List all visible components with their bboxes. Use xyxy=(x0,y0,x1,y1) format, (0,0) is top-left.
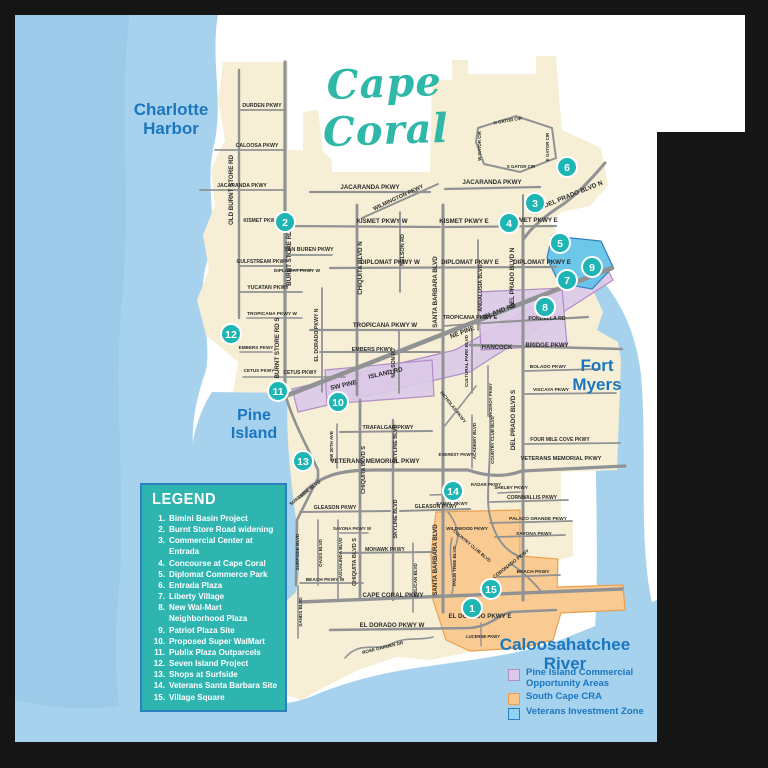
road-label: EVEREST PKWY xyxy=(439,452,474,457)
road-label: W GATOR CIR xyxy=(477,130,482,160)
map-marker-5[interactable]: 5 xyxy=(550,233,570,253)
marker-number: 14 xyxy=(447,486,459,498)
road-label: CETUS PKWY xyxy=(244,368,275,373)
zone-legend: Pine Island Commercial Opportunity Areas… xyxy=(508,668,663,722)
marker-number: 1 xyxy=(469,603,475,615)
legend-item: 1.Bimini Basin Project xyxy=(150,513,279,524)
zone-legend-row: South Cape CRA xyxy=(508,692,663,705)
map-marker-1[interactable]: 1 xyxy=(462,598,482,618)
road-label: OASIS BLVD xyxy=(318,538,323,566)
road-label: PALM TREE BLVD xyxy=(452,545,457,585)
legend-item: 12.Seven Island Project xyxy=(150,658,279,669)
marker-number: 11 xyxy=(272,386,283,398)
legend-item-number: 2. xyxy=(150,524,165,535)
marker-number: 5 xyxy=(557,238,563,250)
road-label: NELSON RD xyxy=(400,234,406,266)
legend-item-label: Veterans Santa Barbara Site xyxy=(169,680,277,691)
legend-item-number: 10. xyxy=(150,636,165,647)
road-label: EMBERS PKWY xyxy=(352,347,393,353)
zone-legend-row: Pine Island Commercial Opportunity Areas xyxy=(508,668,663,690)
legend-item: 13.Shops at Surfside xyxy=(150,669,279,680)
legend-item-label: Liberty Village xyxy=(169,591,224,602)
legend-item-number: 12. xyxy=(150,658,165,669)
zone-legend-label: Veterans Investment Zone xyxy=(526,707,644,718)
marker-number: 8 xyxy=(542,302,548,314)
map-canvas: OLD BURNT STORE RDBURNT STORE RD NBURNT … xyxy=(0,0,768,768)
road-label: VICEROY PKWY xyxy=(488,383,493,417)
legend-item-label: Proposed Super WalMart xyxy=(169,636,265,647)
legend-item-number: 5. xyxy=(150,569,165,580)
road-label: TROPICANA PKWY W xyxy=(353,322,417,329)
frame-right-band xyxy=(657,132,768,768)
road-label: E GATOR CIR xyxy=(545,132,550,161)
road-label: SANTA BARBARA BLVD xyxy=(432,524,439,596)
map-marker-7[interactable]: 7 xyxy=(557,270,577,290)
road-label: SANTA BARBARA BLVD xyxy=(432,256,439,328)
road-label: BURNT STORE RD S xyxy=(274,317,281,378)
road-label: CAPE CORAL PKWY xyxy=(362,592,424,599)
zone-legend-label: Pine Island Commercial Opportunity Areas xyxy=(526,668,633,690)
road-label: BOLADO PKWY xyxy=(530,364,567,370)
legend-item-number: 9. xyxy=(150,625,165,636)
road-label: GLEASON PKWY xyxy=(415,504,458,510)
marker-number: 4 xyxy=(506,218,512,230)
legend-item-label: Shops at Surfside xyxy=(169,669,238,680)
road-label: EMBERS PKWY xyxy=(239,345,274,350)
road-label: CETUS PKWY xyxy=(283,370,317,376)
marker-number: 6 xyxy=(564,162,570,174)
legend-item-number: 1. xyxy=(150,513,165,524)
legend-item-label: Commercial Center at Entrada xyxy=(169,535,279,557)
road-label: CULTURAL PARK BLVD xyxy=(464,334,469,387)
zone-swatch xyxy=(508,708,520,720)
map-marker-4[interactable]: 4 xyxy=(499,213,519,233)
legend-item-number: 3. xyxy=(150,535,165,557)
map-marker-2[interactable]: 2 xyxy=(275,212,295,232)
road xyxy=(525,443,620,444)
road-label: PALACO GRANDE PKWY xyxy=(509,516,568,522)
road xyxy=(285,226,440,227)
zone-swatch xyxy=(508,669,520,681)
harbor-deep-band xyxy=(15,15,130,742)
map-marker-15[interactable]: 15 xyxy=(481,579,501,599)
road-label: DURDEN PKWY xyxy=(242,103,282,109)
legend-item-label: Seven Island Project xyxy=(169,658,248,669)
legend-item: 7.Liberty Village xyxy=(150,591,279,602)
legend-item: 4.Concourse at Cape Coral xyxy=(150,558,279,569)
legend-item-label: New Wal-Mart Neighborhood Plaza xyxy=(169,602,247,624)
road-label: BRIDGE PKWY xyxy=(525,343,568,349)
legend-item-label: Burnt Store Road widening xyxy=(169,524,273,535)
road-label: TRAFALGAR PKWY xyxy=(363,425,414,431)
road-label: OLD BURNT STORE RD xyxy=(228,154,235,225)
marker-number: 15 xyxy=(485,584,497,596)
road-label: FOUR MILE COVE PKWY xyxy=(530,437,590,443)
road-label: WILDWOOD PKWY xyxy=(446,526,488,531)
road-label: DIPLOMAT PKWY W xyxy=(274,268,321,274)
legend-item-label: Patriot Plaza Site xyxy=(169,625,235,636)
road-label: JACARANDA PKWY xyxy=(340,184,400,191)
zone-legend-row: Veterans Investment Zone xyxy=(508,707,663,720)
legend-item: 5.Diplomat Commerce Park xyxy=(150,569,279,580)
legend-item: 10.Proposed Super WalMart xyxy=(150,636,279,647)
road-label: DEL PRADO BLVD N xyxy=(509,247,516,308)
road-label: RADAR PKWY xyxy=(471,482,501,487)
legend-item-number: 6. xyxy=(150,580,165,591)
marker-number: 9 xyxy=(589,262,595,274)
map-marker-13[interactable]: 13 xyxy=(293,451,313,471)
road-label: JACARANDA PKWY xyxy=(462,179,522,186)
road-label: SURFSIDE BLVD xyxy=(295,533,300,570)
marker-number: 7 xyxy=(564,275,570,287)
legend-item-number: 13. xyxy=(150,669,165,680)
map-marker-9[interactable]: 9 xyxy=(582,257,602,277)
legend-item-label: Village Square xyxy=(169,692,225,703)
road-label: EL DORADO PKWY N xyxy=(314,308,320,361)
zone-swatch xyxy=(508,693,520,705)
road-label: VISCAYA PKWY xyxy=(533,387,570,393)
road-label: DEL PRADO BLVD S xyxy=(510,390,517,450)
legend-item-label: Entrada Plaza xyxy=(169,580,222,591)
road-label: LUCERNE PKWY xyxy=(466,634,500,639)
road-label: CHIQUITA BLVD S xyxy=(361,446,367,494)
road-label: KISMET PKWY W xyxy=(356,218,407,225)
legend-panel: LEGEND 1.Bimini Basin Project2.Burnt Sto… xyxy=(140,483,287,712)
road xyxy=(498,492,520,493)
road-label: DIPLOMAT PKWY E xyxy=(513,259,571,266)
legend-list: 1.Bimini Basin Project2.Burnt Store Road… xyxy=(150,513,279,703)
map-marker-6[interactable]: 6 xyxy=(557,157,577,177)
road-label: TROPICANA PKWY W xyxy=(247,311,297,317)
road-label: ANDALUSIA BLVD xyxy=(478,264,484,311)
road-label: CORNWALLIS PKWY xyxy=(507,495,558,501)
road-label: SKYLINE BLVD xyxy=(393,424,399,463)
legend-item-label: Diplomat Commerce Park xyxy=(169,569,268,580)
road-label: BURNT STORE RD N xyxy=(286,224,293,286)
legend-item: 6.Entrada Plaza xyxy=(150,580,279,591)
road-label: GULFSTREAM PKWY xyxy=(236,259,288,265)
marker-number: 2 xyxy=(282,217,288,229)
road-label: S GATOR CIR xyxy=(507,164,536,169)
marker-number: 10 xyxy=(332,397,344,409)
road-label: MOHAWK PKWY xyxy=(365,547,405,553)
legend-title: LEGEND xyxy=(152,491,269,509)
road-label: CALOOSA PKWY xyxy=(236,143,279,149)
marker-number: 3 xyxy=(532,198,538,210)
legend-item: 15.Village Square xyxy=(150,692,279,703)
road-label: KISMET PKWY E xyxy=(439,218,488,225)
road-label: DIPLOMAT PKWY W xyxy=(360,259,420,266)
road-label: COUNTRY CLUB BLVD xyxy=(490,416,495,464)
road-label: SAVONA PKWY xyxy=(516,531,553,537)
legend-item: 14.Veterans Santa Barbara Site xyxy=(150,680,279,691)
map-marker-14[interactable]: 14 xyxy=(443,481,463,501)
zone-legend-label: South Cape CRA xyxy=(526,692,602,703)
legend-item-number: 7. xyxy=(150,591,165,602)
road-label: SAVONA PKWY W xyxy=(333,526,372,531)
road-label: HANCOCK xyxy=(482,345,513,351)
map-marker-10[interactable]: 10 xyxy=(328,392,348,412)
road-label: JACARANDA PKWY xyxy=(217,183,267,189)
legend-item-number: 15. xyxy=(150,692,165,703)
map-marker-11[interactable]: 11 xyxy=(268,381,288,401)
legend-item-label: Publix Plaza Outparcels xyxy=(169,647,261,658)
map-marker-12[interactable]: 12 xyxy=(221,324,241,344)
legend-item: 8.New Wal-Mart Neighborhood Plaza xyxy=(150,602,279,624)
road-label: AGUALINDA BLVD xyxy=(338,537,343,579)
legend-item: 9.Patriot Plaza Site xyxy=(150,625,279,636)
road-label: EL DORADO PKWY W xyxy=(360,622,425,629)
road xyxy=(300,511,390,512)
road xyxy=(525,393,616,394)
road-label: VETERANS MEMORIAL PKWY xyxy=(330,458,420,465)
legend-item: 3.Commercial Center at Entrada xyxy=(150,535,279,557)
road-label: GLEASON PKWY xyxy=(314,505,357,511)
road-label: DIPLOMAT PKWY E xyxy=(441,259,499,266)
legend-item-number: 14. xyxy=(150,680,165,691)
road-label: CHIQUITA BLVD S xyxy=(352,538,358,586)
legend-item-number: 11. xyxy=(150,647,165,658)
marker-number: 12 xyxy=(225,329,237,341)
legend-item-label: Bimini Basin Project xyxy=(169,513,248,524)
road xyxy=(340,431,432,432)
legend-item: 2.Burnt Store Road widening xyxy=(150,524,279,535)
road-label: CHIQUITA BLVD N xyxy=(357,241,364,295)
legend-item: 11.Publix Plaza Outparcels xyxy=(150,647,279,658)
legend-item-number: 8. xyxy=(150,602,165,624)
legend-item-label: Concourse at Cape Coral xyxy=(169,558,266,569)
legend-item-number: 4. xyxy=(150,558,165,569)
road-label: BEACH PKWY xyxy=(517,569,551,575)
cape-coral-map: OLD BURNT STORE RDBURNT STORE RD NBURNT … xyxy=(0,0,768,768)
map-marker-3[interactable]: 3 xyxy=(525,193,545,213)
road-label: SANDS BLVD xyxy=(298,597,303,627)
road-label: YUCATAN PKWY xyxy=(247,285,289,291)
road-label: SKYLINE BLVD xyxy=(393,499,399,538)
road-label: SW 20TH AVE xyxy=(329,431,334,461)
map-marker-8[interactable]: 8 xyxy=(535,297,555,317)
road-label: VETERANS MEMORIAL PKWY xyxy=(521,456,602,462)
road-label: VAN BUREN PKWY xyxy=(284,247,334,253)
marker-number: 13 xyxy=(297,456,309,468)
